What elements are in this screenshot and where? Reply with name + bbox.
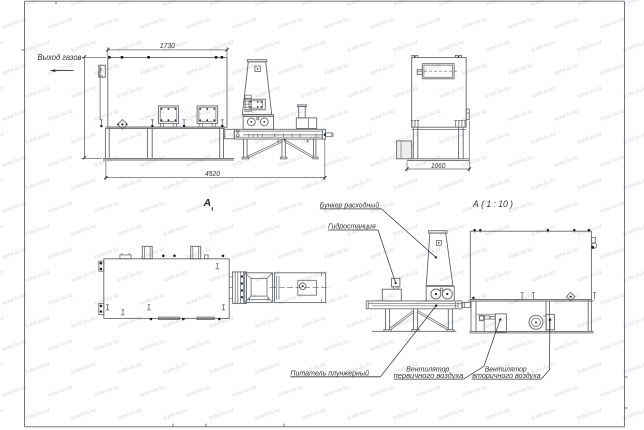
svg-text:kotel-kv.kz: kotel-kv.kz bbox=[117, 361, 144, 376]
svg-text:kotel-kv.kz: kotel-kv.kz bbox=[623, 0, 644, 8]
svg-text:kotel-kv.kz: kotel-kv.kz bbox=[0, 85, 5, 100]
svg-text:kotel-kv.kz: kotel-kv.kz bbox=[324, 62, 351, 77]
svg-text:kotel-kv.kz: kotel-kv.kz bbox=[25, 407, 52, 422]
svg-text:kotel-kv.kz: kotel-kv.kz bbox=[324, 108, 351, 123]
svg-text:kotel-kv.kz: kotel-kv.kz bbox=[462, 154, 489, 169]
svg-text:kotel-kv.kz: kotel-kv.kz bbox=[186, 62, 213, 77]
svg-text:kotel-kv.kz: kotel-kv.kz bbox=[71, 85, 98, 100]
svg-text:kotel-kv.kz: kotel-kv.kz bbox=[163, 269, 190, 284]
svg-text:kotel-kv.kz: kotel-kv.kz bbox=[393, 177, 420, 192]
svg-text:kotel-kv.kz: kotel-kv.kz bbox=[577, 361, 604, 376]
svg-text:kotel-kv.kz: kotel-kv.kz bbox=[232, 246, 259, 261]
svg-text:kotel-kv.kz: kotel-kv.kz bbox=[163, 361, 190, 376]
svg-text:kotel-kv.kz: kotel-kv.kz bbox=[71, 131, 98, 146]
svg-text:kotel-kv.kz: kotel-kv.kz bbox=[600, 338, 627, 353]
svg-text:kotel-kv.kz: kotel-kv.kz bbox=[416, 292, 443, 307]
svg-text:kotel-kv.kz: kotel-kv.kz bbox=[577, 85, 604, 100]
svg-text:kotel-kv.kz: kotel-kv.kz bbox=[462, 16, 489, 31]
svg-text:kotel-kv.kz: kotel-kv.kz bbox=[0, 0, 5, 8]
svg-text:kotel-kv.kz: kotel-kv.kz bbox=[25, 85, 52, 100]
svg-text:kotel-kv.kz: kotel-kv.kz bbox=[232, 16, 259, 31]
svg-text:1060: 1060 bbox=[431, 161, 446, 170]
svg-text:kotel-kv.kz: kotel-kv.kz bbox=[370, 16, 397, 31]
svg-text:kotel-kv.kz: kotel-kv.kz bbox=[163, 85, 190, 100]
svg-text:kotel-kv.kz: kotel-kv.kz bbox=[416, 338, 443, 353]
svg-text:kotel-kv.kz: kotel-kv.kz bbox=[140, 108, 167, 123]
svg-text:kotel-kv.kz: kotel-kv.kz bbox=[416, 108, 443, 123]
svg-text:kotel-kv.kz: kotel-kv.kz bbox=[278, 246, 305, 261]
svg-text:kotel-kv.kz: kotel-kv.kz bbox=[508, 154, 535, 169]
svg-text:kotel-kv.kz: kotel-kv.kz bbox=[554, 108, 581, 123]
svg-text:kotel-kv.kz: kotel-kv.kz bbox=[255, 223, 282, 238]
svg-text:kotel-kv.kz: kotel-kv.kz bbox=[623, 177, 644, 192]
svg-text:kotel-kv.kz: kotel-kv.kz bbox=[278, 200, 305, 215]
svg-text:kotel-kv.kz: kotel-kv.kz bbox=[48, 154, 75, 169]
svg-text:kotel-kv.kz: kotel-kv.kz bbox=[623, 269, 644, 284]
svg-text:kotel-kv.kz: kotel-kv.kz bbox=[255, 361, 282, 376]
svg-text:kotel-kv.kz: kotel-kv.kz bbox=[25, 315, 52, 330]
svg-text:Выход газов: Выход газов bbox=[38, 52, 82, 62]
svg-text:kotel-kv.kz: kotel-kv.kz bbox=[255, 131, 282, 146]
svg-text:kotel-kv.kz: kotel-kv.kz bbox=[255, 315, 282, 330]
svg-text:kotel-kv.kz: kotel-kv.kz bbox=[232, 154, 259, 169]
svg-text:kotel-kv.kz: kotel-kv.kz bbox=[140, 62, 167, 77]
svg-text:kotel-kv.kz: kotel-kv.kz bbox=[347, 131, 374, 146]
svg-text:kotel-kv.kz: kotel-kv.kz bbox=[163, 177, 190, 192]
svg-text:kotel-kv.kz: kotel-kv.kz bbox=[255, 269, 282, 284]
svg-text:kotel-kv.kz: kotel-kv.kz bbox=[600, 200, 627, 215]
svg-text:kotel-kv.kz: kotel-kv.kz bbox=[577, 269, 604, 284]
svg-text:kotel-kv.kz: kotel-kv.kz bbox=[554, 154, 581, 169]
svg-text:kotel-kv.kz: kotel-kv.kz bbox=[439, 39, 466, 54]
svg-text:kotel-kv.kz: kotel-kv.kz bbox=[324, 154, 351, 169]
svg-text:4520: 4520 bbox=[205, 169, 220, 178]
svg-text:kotel-kv.kz: kotel-kv.kz bbox=[531, 315, 558, 330]
svg-text:kotel-kv.kz: kotel-kv.kz bbox=[370, 338, 397, 353]
svg-text:kotel-kv.kz: kotel-kv.kz bbox=[600, 16, 627, 31]
svg-text:kotel-kv.kz: kotel-kv.kz bbox=[393, 269, 420, 284]
svg-text:kotel-kv.kz: kotel-kv.kz bbox=[485, 269, 512, 284]
svg-text:kotel-kv.kz: kotel-kv.kz bbox=[370, 246, 397, 261]
svg-text:kotel-kv.kz: kotel-kv.kz bbox=[255, 407, 282, 422]
svg-text:kotel-kv.kz: kotel-kv.kz bbox=[232, 200, 259, 215]
svg-text:kotel-kv.kz: kotel-kv.kz bbox=[393, 315, 420, 330]
svg-text:kotel-kv.kz: kotel-kv.kz bbox=[347, 85, 374, 100]
svg-text:kotel-kv.kz: kotel-kv.kz bbox=[623, 131, 644, 146]
svg-text:kotel-kv.kz: kotel-kv.kz bbox=[462, 62, 489, 77]
svg-text:kotel-kv.kz: kotel-kv.kz bbox=[209, 177, 236, 192]
svg-text:kotel-kv.kz: kotel-kv.kz bbox=[324, 292, 351, 307]
svg-text:kotel-kv.kz: kotel-kv.kz bbox=[278, 108, 305, 123]
svg-text:kotel-kv.kz: kotel-kv.kz bbox=[186, 292, 213, 307]
svg-text:kotel-kv.kz: kotel-kv.kz bbox=[140, 154, 167, 169]
svg-text:kotel-kv.kz: kotel-kv.kz bbox=[255, 85, 282, 100]
svg-text:kotel-kv.kz: kotel-kv.kz bbox=[554, 338, 581, 353]
svg-text:kotel-kv.kz: kotel-kv.kz bbox=[117, 223, 144, 238]
svg-text:kotel-kv.kz: kotel-kv.kz bbox=[140, 16, 167, 31]
svg-text:kotel-kv.kz: kotel-kv.kz bbox=[531, 177, 558, 192]
svg-text:kotel-kv.kz: kotel-kv.kz bbox=[140, 338, 167, 353]
svg-text:1730: 1730 bbox=[160, 41, 175, 50]
svg-text:kotel-kv.kz: kotel-kv.kz bbox=[163, 131, 190, 146]
svg-text:kotel-kv.kz: kotel-kv.kz bbox=[163, 407, 190, 422]
svg-text:Питатель плунжерный: Питатель плунжерный bbox=[290, 369, 369, 378]
svg-text:kotel-kv.kz: kotel-kv.kz bbox=[508, 384, 535, 399]
svg-text:kotel-kv.kz: kotel-kv.kz bbox=[94, 338, 121, 353]
svg-text:kotel-kv.kz: kotel-kv.kz bbox=[623, 223, 644, 238]
svg-text:kotel-kv.kz: kotel-kv.kz bbox=[71, 407, 98, 422]
svg-text:kotel-kv.kz: kotel-kv.kz bbox=[301, 315, 328, 330]
svg-text:kotel-kv.kz: kotel-kv.kz bbox=[71, 223, 98, 238]
svg-text:kotel-kv.kz: kotel-kv.kz bbox=[0, 39, 5, 54]
svg-text:kotel-kv.kz: kotel-kv.kz bbox=[439, 177, 466, 192]
svg-text:kotel-kv.kz: kotel-kv.kz bbox=[209, 269, 236, 284]
svg-text:kotel-kv.kz: kotel-kv.kz bbox=[623, 315, 644, 330]
svg-text:kotel-kv.kz: kotel-kv.kz bbox=[531, 269, 558, 284]
svg-text:kotel-kv.kz: kotel-kv.kz bbox=[531, 39, 558, 54]
svg-text:вторичного воздуха: вторичного воздуха bbox=[472, 371, 540, 380]
svg-text:kotel-kv.kz: kotel-kv.kz bbox=[485, 223, 512, 238]
svg-text:kotel-kv.kz: kotel-kv.kz bbox=[301, 85, 328, 100]
svg-text:kotel-kv.kz: kotel-kv.kz bbox=[117, 315, 144, 330]
svg-text:kotel-kv.kz: kotel-kv.kz bbox=[0, 315, 5, 330]
svg-text:первичного воздуха: первичного воздуха bbox=[394, 371, 464, 380]
svg-text:kotel-kv.kz: kotel-kv.kz bbox=[94, 16, 121, 31]
svg-text:kotel-kv.kz: kotel-kv.kz bbox=[370, 108, 397, 123]
svg-text:Гидростанция: Гидростанция bbox=[328, 222, 376, 231]
svg-text:kotel-kv.kz: kotel-kv.kz bbox=[554, 384, 581, 399]
svg-text:kotel-kv.kz: kotel-kv.kz bbox=[508, 108, 535, 123]
svg-text:kotel-kv.kz: kotel-kv.kz bbox=[25, 269, 52, 284]
svg-text:kotel-kv.kz: kotel-kv.kz bbox=[393, 407, 420, 422]
svg-text:kotel-kv.kz: kotel-kv.kz bbox=[370, 292, 397, 307]
svg-text:kotel-kv.kz: kotel-kv.kz bbox=[347, 177, 374, 192]
svg-text:kotel-kv.kz: kotel-kv.kz bbox=[117, 85, 144, 100]
svg-text:kotel-kv.kz: kotel-kv.kz bbox=[25, 361, 52, 376]
svg-text:kotel-kv.kz: kotel-kv.kz bbox=[508, 62, 535, 77]
svg-text:kotel-kv.kz: kotel-kv.kz bbox=[577, 39, 604, 54]
svg-text:kotel-kv.kz: kotel-kv.kz bbox=[531, 407, 558, 422]
svg-text:kotel-kv.kz: kotel-kv.kz bbox=[577, 177, 604, 192]
svg-text:kotel-kv.kz: kotel-kv.kz bbox=[48, 62, 75, 77]
svg-text:kotel-kv.kz: kotel-kv.kz bbox=[94, 384, 121, 399]
svg-text:kotel-kv.kz: kotel-kv.kz bbox=[255, 177, 282, 192]
svg-text:kotel-kv.kz: kotel-kv.kz bbox=[255, 39, 282, 54]
svg-text:kotel-kv.kz: kotel-kv.kz bbox=[117, 269, 144, 284]
svg-text:kotel-kv.kz: kotel-kv.kz bbox=[577, 131, 604, 146]
svg-text:kotel-kv.kz: kotel-kv.kz bbox=[554, 62, 581, 77]
svg-text:kotel-kv.kz: kotel-kv.kz bbox=[163, 223, 190, 238]
svg-text:kotel-kv.kz: kotel-kv.kz bbox=[140, 292, 167, 307]
svg-text:kotel-kv.kz: kotel-kv.kz bbox=[462, 246, 489, 261]
svg-text:kotel-kv.kz: kotel-kv.kz bbox=[416, 200, 443, 215]
svg-text:kotel-kv.kz: kotel-kv.kz bbox=[439, 131, 466, 146]
svg-text:kotel-kv.kz: kotel-kv.kz bbox=[209, 39, 236, 54]
svg-text:kotel-kv.kz: kotel-kv.kz bbox=[25, 177, 52, 192]
svg-text:kotel-kv.kz: kotel-kv.kz bbox=[370, 62, 397, 77]
svg-text:kotel-kv.kz: kotel-kv.kz bbox=[623, 39, 644, 54]
svg-text:kotel-kv.kz: kotel-kv.kz bbox=[485, 177, 512, 192]
svg-text:kotel-kv.kz: kotel-kv.kz bbox=[531, 223, 558, 238]
svg-text:kotel-kv.kz: kotel-kv.kz bbox=[600, 292, 627, 307]
svg-text:kotel-kv.kz: kotel-kv.kz bbox=[485, 131, 512, 146]
svg-text:kotel-kv.kz: kotel-kv.kz bbox=[71, 315, 98, 330]
svg-text:kotel-kv.kz: kotel-kv.kz bbox=[117, 177, 144, 192]
svg-text:kotel-kv.kz: kotel-kv.kz bbox=[439, 407, 466, 422]
svg-text:kotel-kv.kz: kotel-kv.kz bbox=[48, 338, 75, 353]
svg-text:kotel-kv.kz: kotel-kv.kz bbox=[0, 361, 5, 376]
svg-text:kotel-kv.kz: kotel-kv.kz bbox=[600, 246, 627, 261]
svg-text:kotel-kv.kz: kotel-kv.kz bbox=[416, 16, 443, 31]
svg-text:kotel-kv.kz: kotel-kv.kz bbox=[209, 223, 236, 238]
svg-text:kotel-kv.kz: kotel-kv.kz bbox=[347, 39, 374, 54]
svg-text:kotel-kv.kz: kotel-kv.kz bbox=[209, 407, 236, 422]
svg-text:kotel-kv.kz: kotel-kv.kz bbox=[554, 200, 581, 215]
svg-text:kotel-kv.kz: kotel-kv.kz bbox=[117, 131, 144, 146]
svg-text:kotel-kv.kz: kotel-kv.kz bbox=[623, 407, 644, 422]
svg-text:kotel-kv.kz: kotel-kv.kz bbox=[71, 269, 98, 284]
svg-text:kotel-kv.kz: kotel-kv.kz bbox=[232, 338, 259, 353]
svg-text:kotel-kv.kz: kotel-kv.kz bbox=[278, 62, 305, 77]
svg-text:kotel-kv.kz: kotel-kv.kz bbox=[600, 62, 627, 77]
svg-text:kotel-kv.kz: kotel-kv.kz bbox=[462, 338, 489, 353]
svg-text:А ( 1 : 10 ): А ( 1 : 10 ) bbox=[472, 199, 513, 209]
svg-text:kotel-kv.kz: kotel-kv.kz bbox=[393, 85, 420, 100]
svg-text:Бункер расходный: Бункер расходный bbox=[320, 201, 380, 210]
svg-text:kotel-kv.kz: kotel-kv.kz bbox=[71, 361, 98, 376]
svg-text:kotel-kv.kz: kotel-kv.kz bbox=[0, 223, 5, 238]
svg-text:kotel-kv.kz: kotel-kv.kz bbox=[324, 384, 351, 399]
svg-text:kotel-kv.kz: kotel-kv.kz bbox=[117, 39, 144, 54]
svg-text:kotel-kv.kz: kotel-kv.kz bbox=[140, 384, 167, 399]
svg-text:kotel-kv.kz: kotel-kv.kz bbox=[278, 384, 305, 399]
svg-text:kotel-kv.kz: kotel-kv.kz bbox=[324, 338, 351, 353]
svg-text:kotel-kv.kz: kotel-kv.kz bbox=[370, 154, 397, 169]
svg-text:kotel-kv.kz: kotel-kv.kz bbox=[186, 338, 213, 353]
svg-text:kotel-kv.kz: kotel-kv.kz bbox=[94, 62, 121, 77]
svg-text:kotel-kv.kz: kotel-kv.kz bbox=[301, 269, 328, 284]
svg-text:kotel-kv.kz: kotel-kv.kz bbox=[554, 246, 581, 261]
svg-text:kotel-kv.kz: kotel-kv.kz bbox=[531, 131, 558, 146]
svg-text:kotel-kv.kz: kotel-kv.kz bbox=[324, 16, 351, 31]
svg-text:kotel-kv.kz: kotel-kv.kz bbox=[48, 246, 75, 261]
svg-text:А: А bbox=[203, 197, 212, 209]
svg-text:kotel-kv.kz: kotel-kv.kz bbox=[301, 39, 328, 54]
svg-text:kotel-kv.kz: kotel-kv.kz bbox=[0, 177, 5, 192]
svg-text:kotel-kv.kz: kotel-kv.kz bbox=[186, 16, 213, 31]
svg-text:kotel-kv.kz: kotel-kv.kz bbox=[94, 108, 121, 123]
svg-text:kotel-kv.kz: kotel-kv.kz bbox=[140, 200, 167, 215]
svg-text:kotel-kv.kz: kotel-kv.kz bbox=[577, 407, 604, 422]
svg-text:kotel-kv.kz: kotel-kv.kz bbox=[554, 16, 581, 31]
svg-text:kotel-kv.kz: kotel-kv.kz bbox=[485, 315, 512, 330]
svg-text:kotel-kv.kz: kotel-kv.kz bbox=[416, 384, 443, 399]
svg-text:kotel-kv.kz: kotel-kv.kz bbox=[48, 108, 75, 123]
svg-text:kotel-kv.kz: kotel-kv.kz bbox=[370, 384, 397, 399]
svg-text:kotel-kv.kz: kotel-kv.kz bbox=[186, 154, 213, 169]
svg-text:kotel-kv.kz: kotel-kv.kz bbox=[439, 85, 466, 100]
svg-text:kotel-kv.kz: kotel-kv.kz bbox=[71, 177, 98, 192]
svg-text:kotel-kv.kz: kotel-kv.kz bbox=[94, 200, 121, 215]
svg-text:kotel-kv.kz: kotel-kv.kz bbox=[347, 407, 374, 422]
svg-text:kotel-kv.kz: kotel-kv.kz bbox=[508, 246, 535, 261]
svg-text:kotel-kv.kz: kotel-kv.kz bbox=[347, 315, 374, 330]
svg-text:kotel-kv.kz: kotel-kv.kz bbox=[48, 292, 75, 307]
svg-text:kotel-kv.kz: kotel-kv.kz bbox=[485, 85, 512, 100]
svg-text:kotel-kv.kz: kotel-kv.kz bbox=[48, 384, 75, 399]
svg-text:kotel-kv.kz: kotel-kv.kz bbox=[347, 269, 374, 284]
svg-text:kotel-kv.kz: kotel-kv.kz bbox=[0, 131, 5, 146]
svg-text:kotel-kv.kz: kotel-kv.kz bbox=[485, 407, 512, 422]
svg-text:kotel-kv.kz: kotel-kv.kz bbox=[301, 223, 328, 238]
svg-text:kotel-kv.kz: kotel-kv.kz bbox=[0, 407, 5, 422]
svg-text:kotel-kv.kz: kotel-kv.kz bbox=[232, 384, 259, 399]
svg-text:kotel-kv.kz: kotel-kv.kz bbox=[600, 108, 627, 123]
svg-text:kotel-kv.kz: kotel-kv.kz bbox=[485, 39, 512, 54]
svg-text:kotel-kv.kz: kotel-kv.kz bbox=[209, 361, 236, 376]
svg-text:kotel-kv.kz: kotel-kv.kz bbox=[94, 154, 121, 169]
svg-text:kotel-kv.kz: kotel-kv.kz bbox=[48, 200, 75, 215]
svg-text:kotel-kv.kz: kotel-kv.kz bbox=[0, 269, 5, 284]
svg-text:kotel-kv.kz: kotel-kv.kz bbox=[324, 246, 351, 261]
svg-text:kotel-kv.kz: kotel-kv.kz bbox=[508, 338, 535, 353]
svg-text:kotel-kv.kz: kotel-kv.kz bbox=[600, 384, 627, 399]
svg-text:kotel-kv.kz: kotel-kv.kz bbox=[209, 85, 236, 100]
svg-text:kotel-kv.kz: kotel-kv.kz bbox=[301, 177, 328, 192]
svg-text:kotel-kv.kz: kotel-kv.kz bbox=[531, 85, 558, 100]
svg-text:kotel-kv.kz: kotel-kv.kz bbox=[278, 338, 305, 353]
svg-text:kotel-kv.kz: kotel-kv.kz bbox=[25, 223, 52, 238]
svg-text:kotel-kv.kz: kotel-kv.kz bbox=[25, 131, 52, 146]
svg-text:kotel-kv.kz: kotel-kv.kz bbox=[600, 154, 627, 169]
svg-text:kotel-kv.kz: kotel-kv.kz bbox=[278, 292, 305, 307]
svg-text:kotel-kv.kz: kotel-kv.kz bbox=[278, 16, 305, 31]
svg-text:kotel-kv.kz: kotel-kv.kz bbox=[508, 16, 535, 31]
svg-text:kotel-kv.kz: kotel-kv.kz bbox=[48, 16, 75, 31]
svg-text:kotel-kv.kz: kotel-kv.kz bbox=[117, 407, 144, 422]
svg-text:kotel-kv.kz: kotel-kv.kz bbox=[393, 39, 420, 54]
svg-text:kotel-kv.kz: kotel-kv.kz bbox=[462, 384, 489, 399]
svg-text:kotel-kv.kz: kotel-kv.kz bbox=[301, 407, 328, 422]
svg-text:kotel-kv.kz: kotel-kv.kz bbox=[623, 361, 644, 376]
svg-text:kotel-kv.kz: kotel-kv.kz bbox=[623, 85, 644, 100]
svg-text:kotel-kv.kz: kotel-kv.kz bbox=[577, 315, 604, 330]
svg-text:kotel-kv.kz: kotel-kv.kz bbox=[186, 384, 213, 399]
svg-text:kotel-kv.kz: kotel-kv.kz bbox=[232, 62, 259, 77]
